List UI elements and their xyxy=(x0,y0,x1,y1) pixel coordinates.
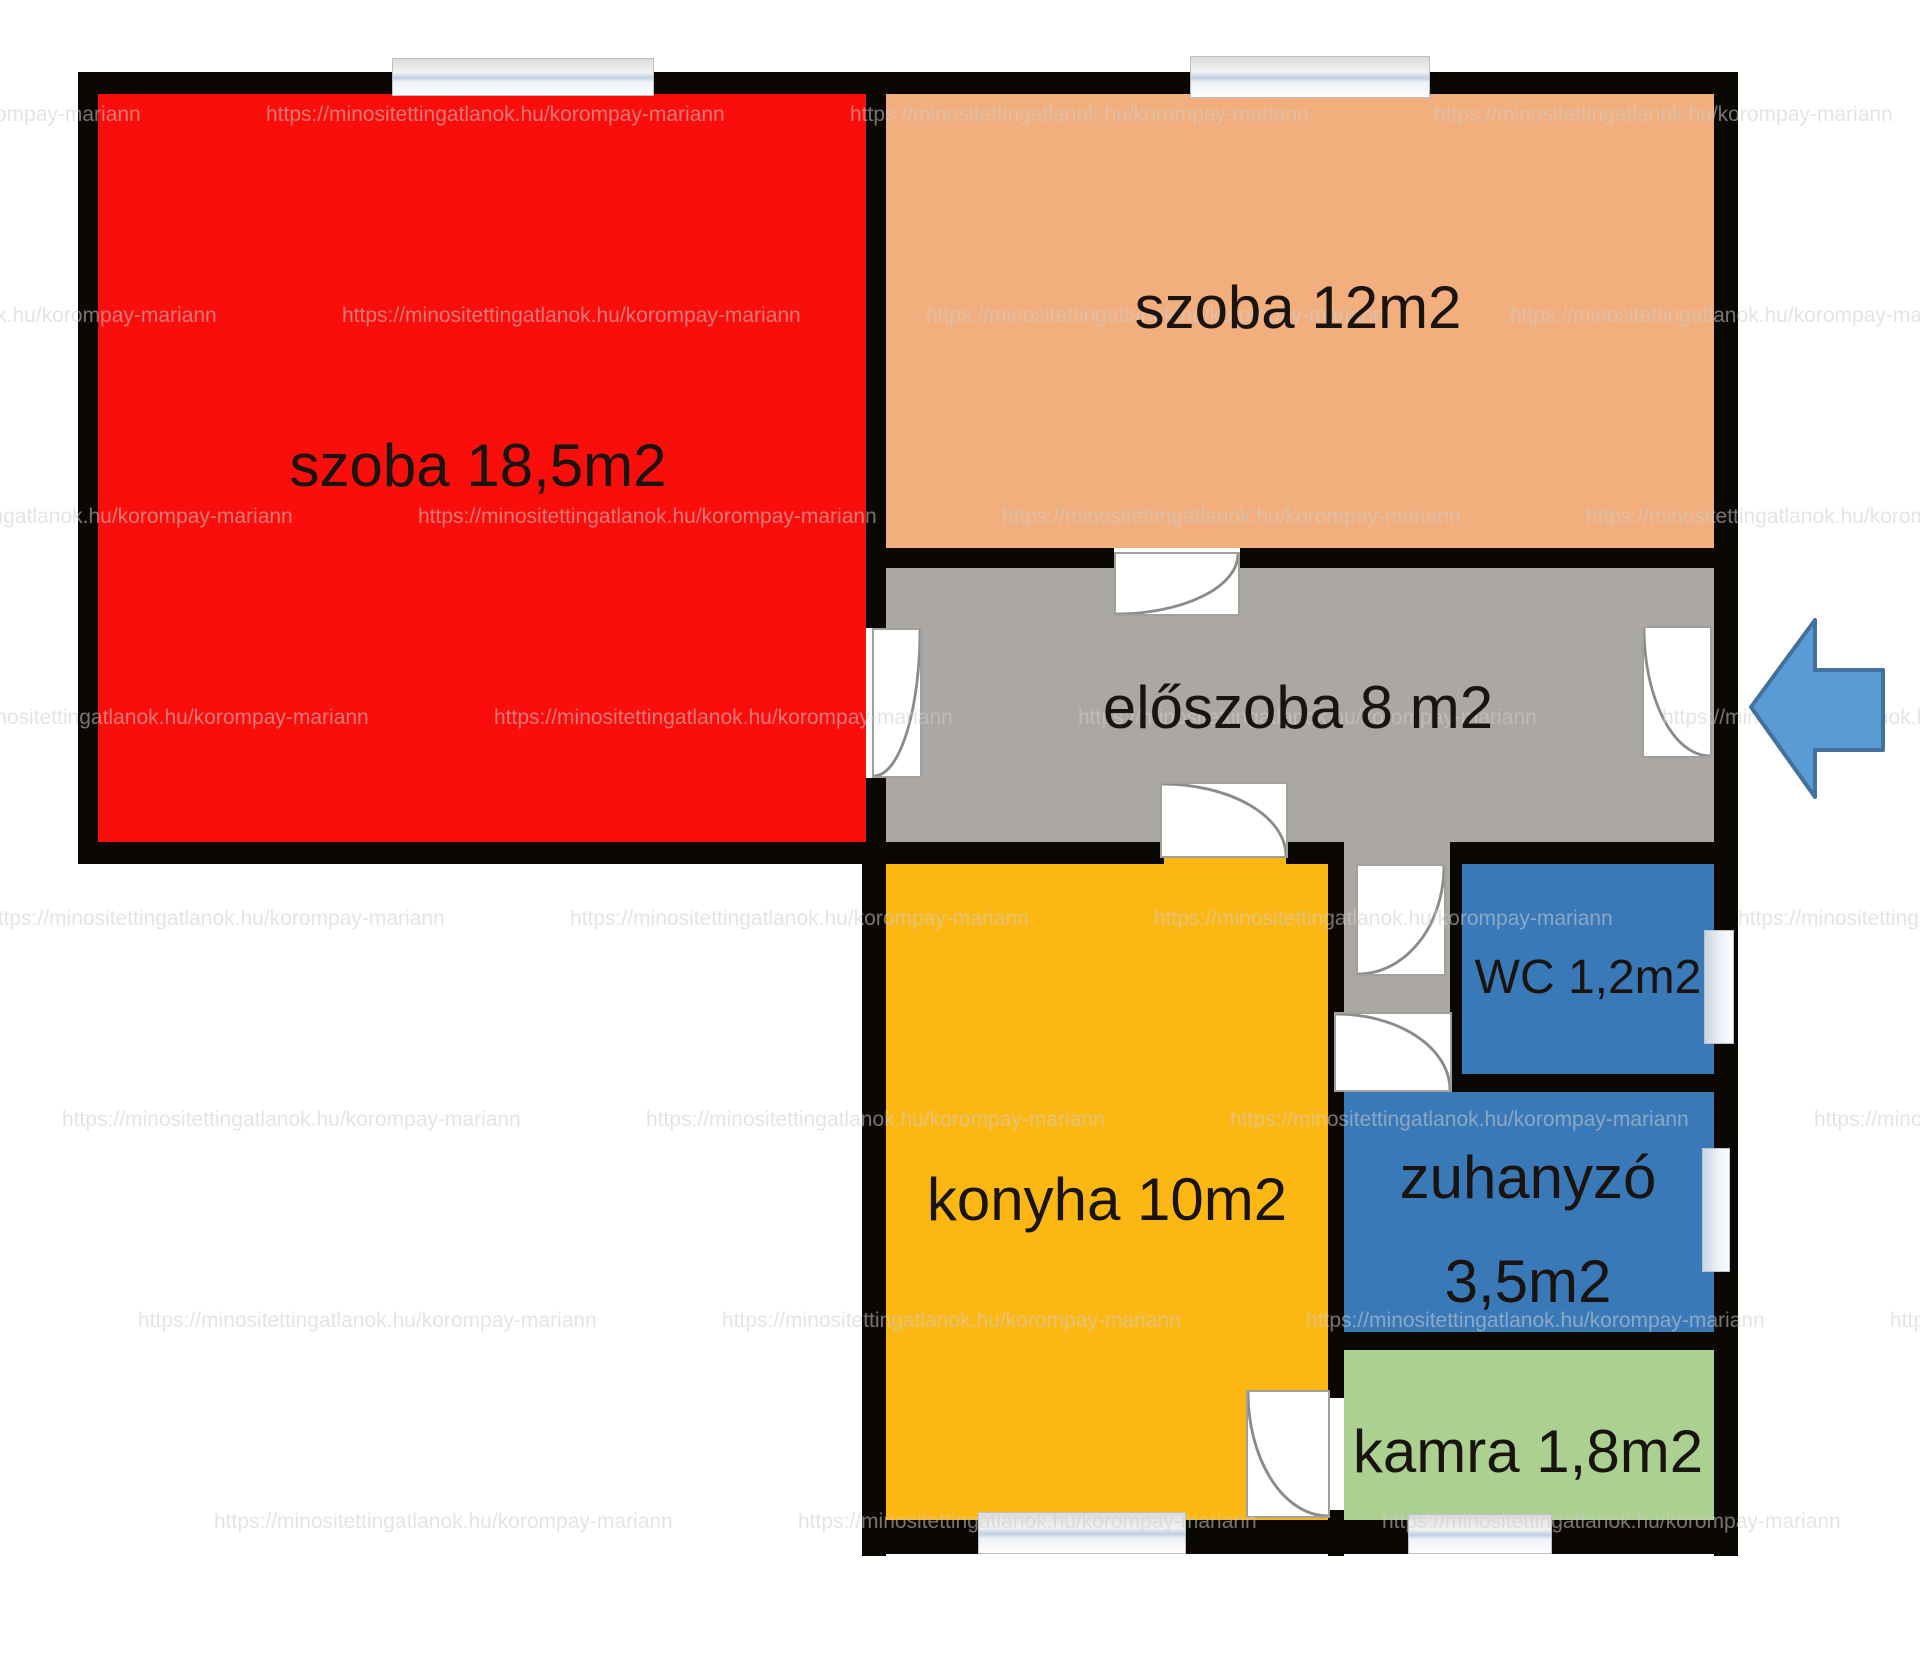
room-label-wc: WC 1,2m2 xyxy=(1475,954,1702,1002)
wall-mid-vertical-lower xyxy=(866,778,886,842)
door-icon xyxy=(1356,864,1446,976)
room-label-szoba-small: szoba 12m2 xyxy=(1135,278,1462,338)
room-label-szoba-large: szoba 18,5m2 xyxy=(290,436,667,496)
window-icon xyxy=(1704,930,1734,1044)
watermark-text: https://minositettingatlanok.hu/korompay… xyxy=(214,1510,673,1534)
watermark-text: https://minositettingatlanok.hu/korompay… xyxy=(1814,1108,1920,1132)
room-label-kamra: kamra 1,8m2 xyxy=(1353,1422,1703,1482)
watermark-text: https://minositettingatlanok.hu/korompay… xyxy=(62,1108,521,1132)
room-label-eloszoba: előszoba 8 m2 xyxy=(1103,678,1493,738)
entrance-door-icon xyxy=(1642,626,1712,758)
door-icon xyxy=(1160,782,1288,858)
entrance-arrow-icon xyxy=(1748,616,1890,804)
wall-eloszoba-bottom-a xyxy=(886,842,1164,864)
wall-salmon-bottom-right xyxy=(1240,548,1738,568)
wall-left xyxy=(78,72,98,864)
door-icon xyxy=(1246,1390,1330,1518)
room-label-konyha: konyha 10m2 xyxy=(927,1170,1287,1230)
wall-salmon-bottom-left xyxy=(866,548,1114,568)
door-icon xyxy=(1334,1012,1452,1092)
door-icon xyxy=(1114,552,1240,616)
wall-mid-vertical-upper xyxy=(866,72,886,628)
doorway-kitchen-kamra xyxy=(1328,1398,1344,1510)
watermark-text: https://minositettingatlanok.hu/korompay… xyxy=(1738,907,1920,931)
watermark-text: https://minositettingatlanok.hu/korompay… xyxy=(0,907,445,931)
room-label-zuhanyzo-line2: 3,5m2 xyxy=(1445,1252,1612,1312)
window-icon xyxy=(1408,1514,1552,1554)
door-icon xyxy=(872,628,922,778)
watermark-text: https://minositettingatlanok.hu/korompay… xyxy=(138,1309,597,1333)
window-icon xyxy=(978,1512,1186,1554)
wall-wc-top xyxy=(1450,842,1738,864)
wall-wc-bottom xyxy=(1450,1074,1738,1092)
wall-top xyxy=(78,72,1738,94)
wall-red-bottom xyxy=(78,842,886,864)
floor-plan: szoba 18,5m2 szoba 12m2 előszoba 8 m2 ko… xyxy=(0,0,1920,1662)
room-label-zuhanyzo-line1: zuhanyzó xyxy=(1400,1148,1657,1208)
wall-kitchen-left xyxy=(862,842,886,1556)
watermark-text: https://minositettingatlanok.hu/korompay… xyxy=(1890,1309,1920,1333)
entrance-arrow-shape xyxy=(1751,620,1883,797)
window-icon xyxy=(1190,56,1430,98)
window-icon xyxy=(1702,1148,1730,1272)
wall-zuhanyzo-bottom xyxy=(1328,1332,1738,1350)
window-icon xyxy=(392,58,654,96)
